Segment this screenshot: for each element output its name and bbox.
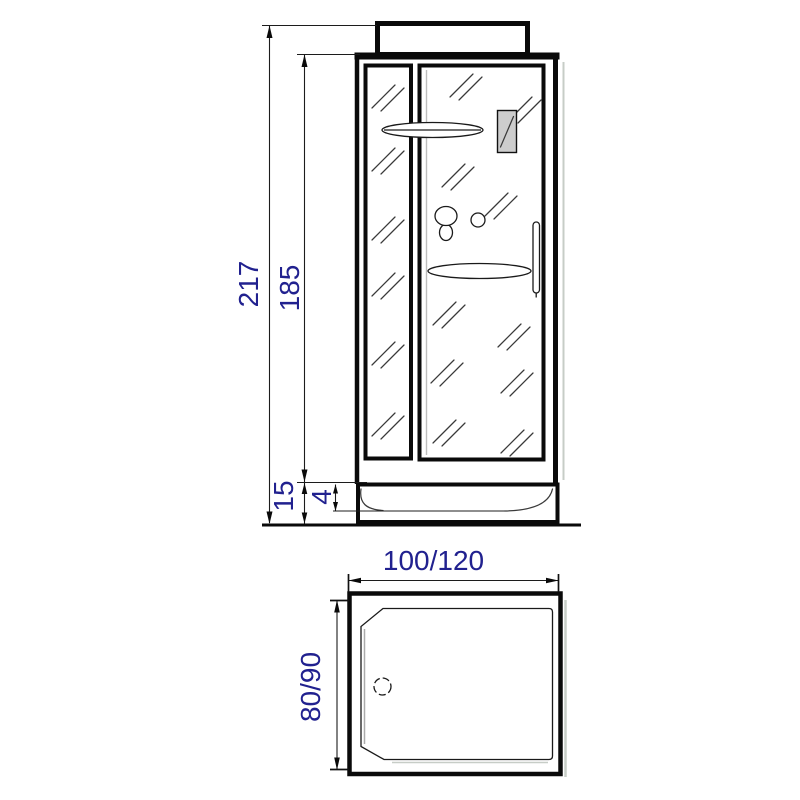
- wall-shelf-lower: [428, 264, 531, 279]
- roof-panel: [378, 24, 528, 55]
- dimension-label-tray-rim: 4: [306, 489, 337, 505]
- dimension-label-glass-height: 185: [274, 265, 305, 312]
- dimension-glass-height: 185: [274, 55, 360, 483]
- dimension-label-width: 100/120: [383, 545, 484, 576]
- dimension-label-depth: 80/90: [295, 652, 326, 722]
- technical-drawing-page: 217 185 15 4: [0, 0, 800, 800]
- dimension-label-tray-height: 15: [268, 480, 299, 511]
- diverter-knob: [471, 213, 485, 227]
- drain: [374, 678, 391, 695]
- wall-shelf-upper: [382, 123, 483, 138]
- top-view: [350, 594, 566, 778]
- dimension-depth: 80/90: [295, 600, 349, 770]
- dimension-tray-height: 15: [268, 480, 307, 523]
- dimension-label-total-height: 217: [233, 261, 264, 308]
- front-view: [262, 24, 581, 526]
- control-panel: [498, 111, 517, 153]
- dimension-width: 100/120: [349, 545, 559, 592]
- shower-cabin-drawing: 217 185 15 4: [0, 0, 800, 800]
- shower-tray-front: [358, 485, 558, 523]
- door-handle: [533, 222, 540, 298]
